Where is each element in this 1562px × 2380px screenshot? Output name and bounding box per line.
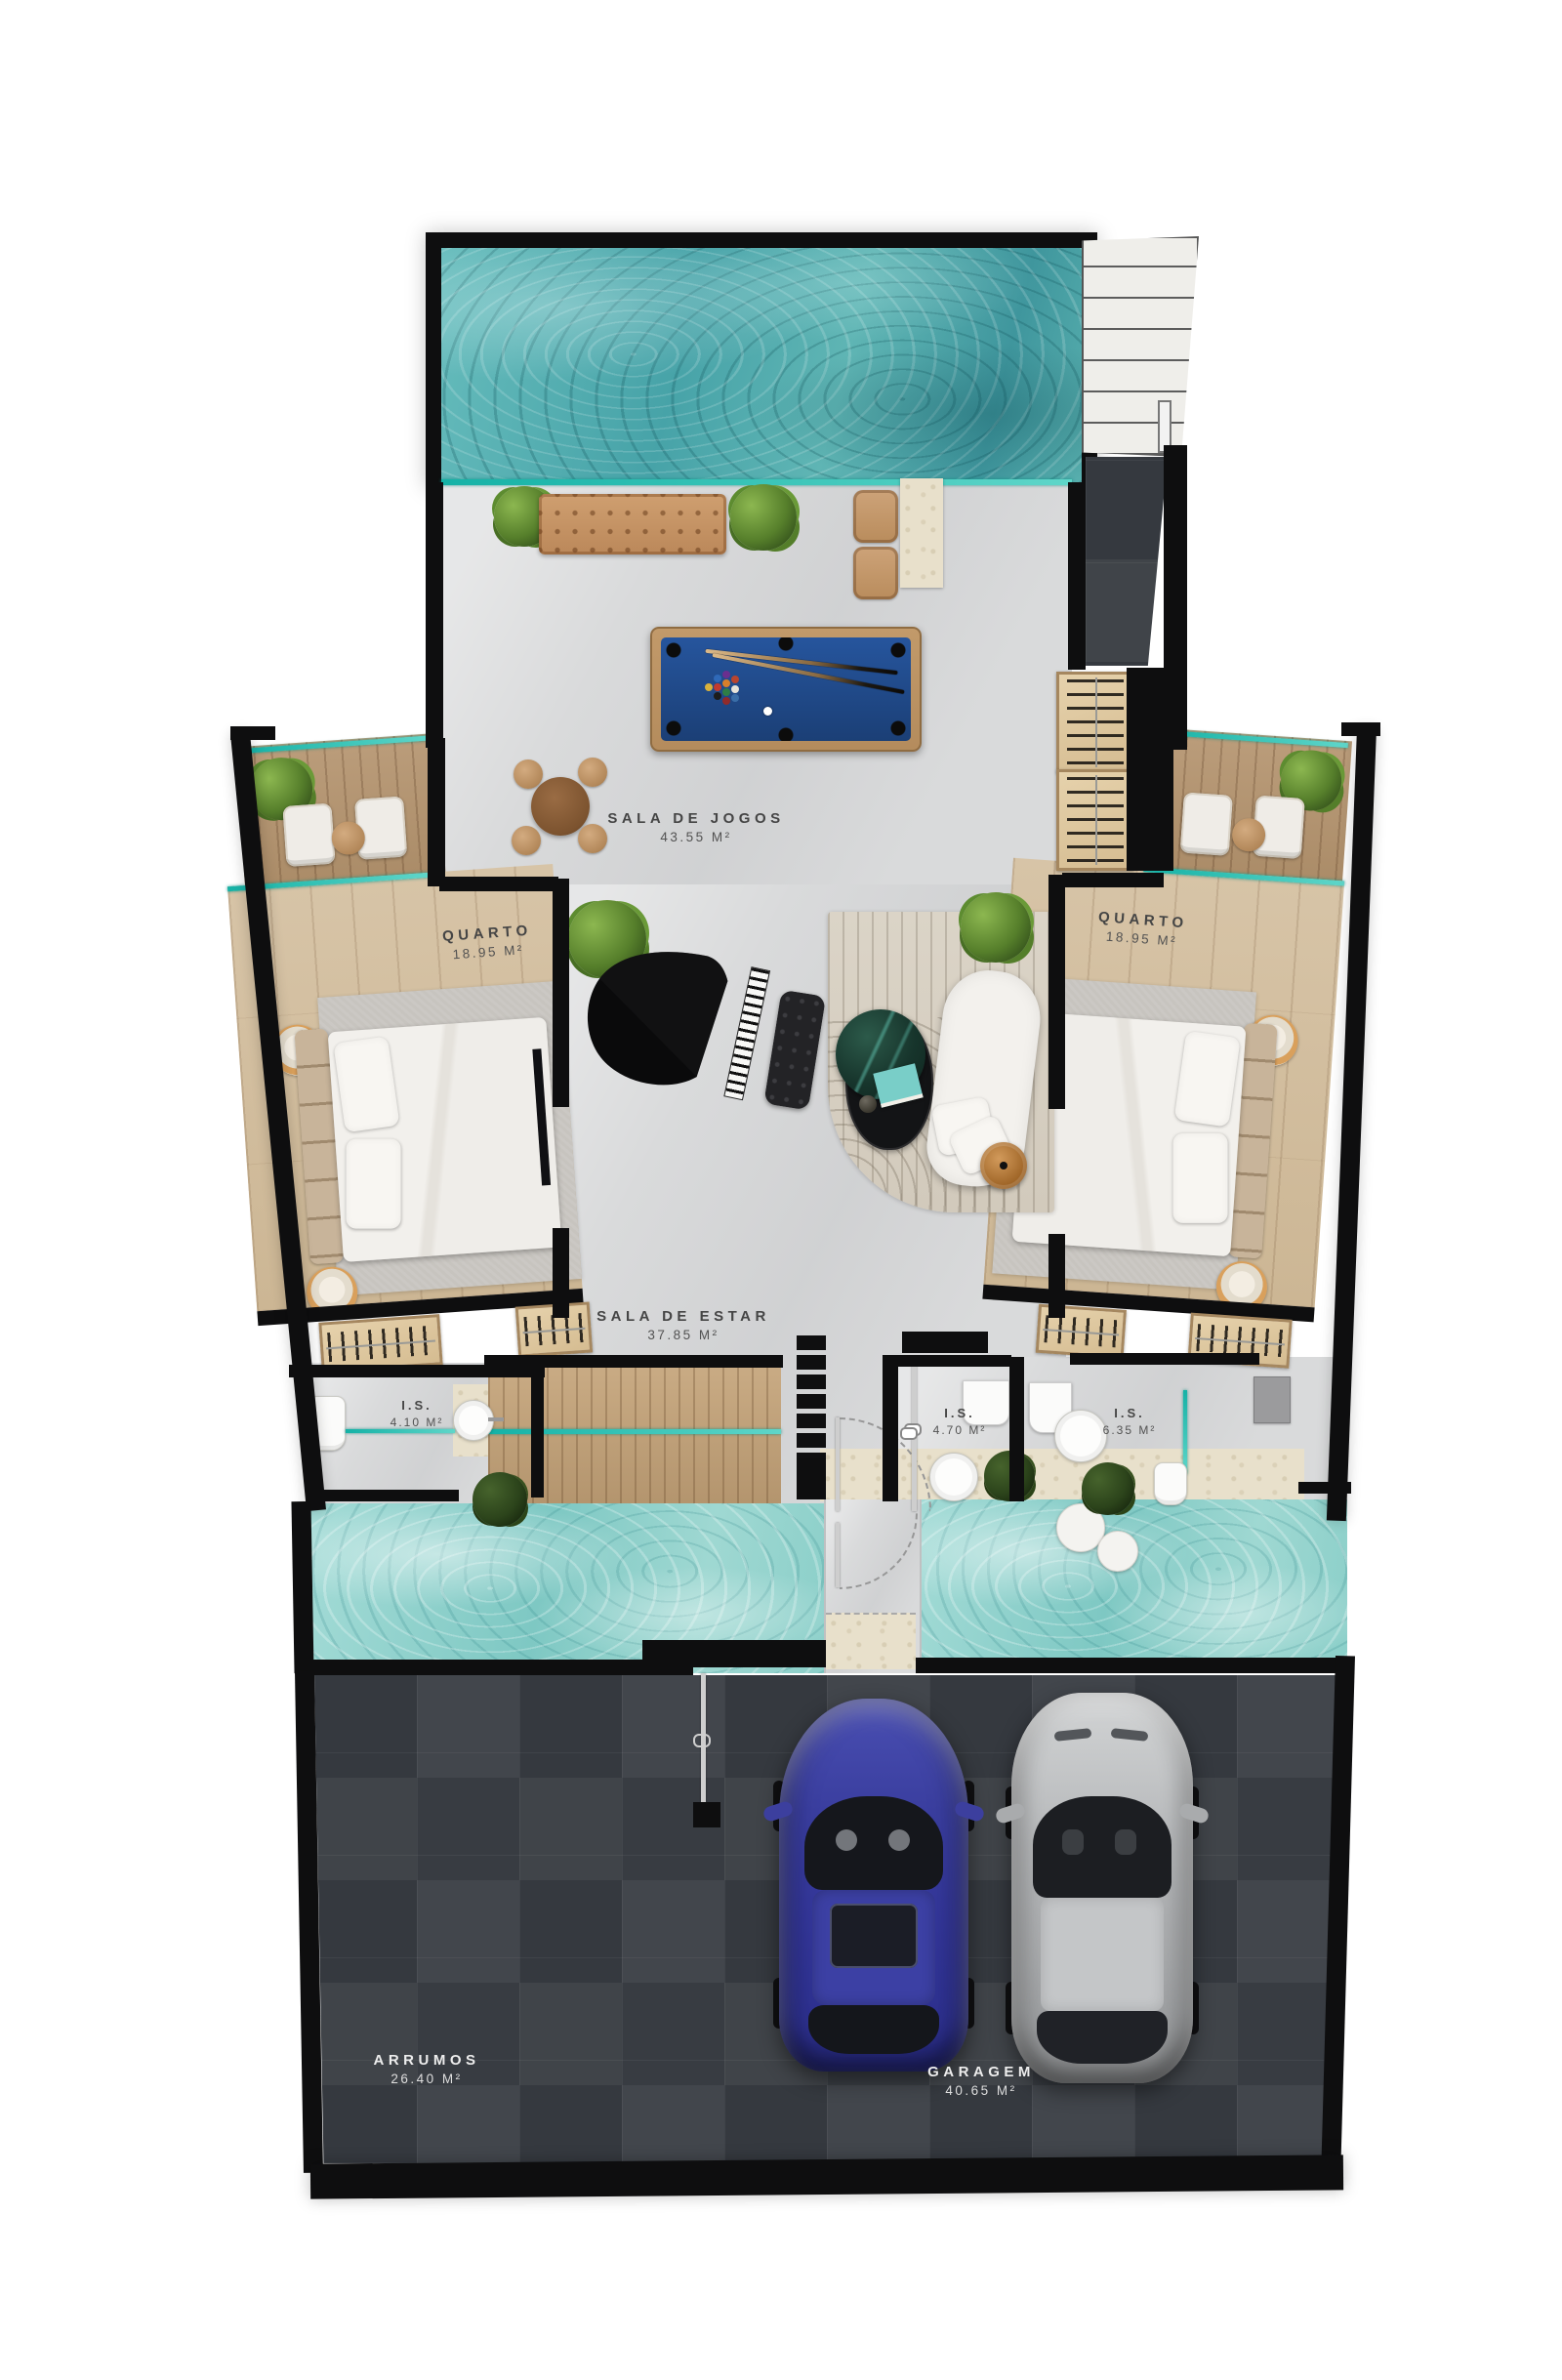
upper-pool-water	[441, 248, 1082, 484]
stool	[578, 758, 607, 787]
floor-plan: QUARTO 18.95 M² QUARTO 18.95 M²	[0, 0, 1562, 2380]
shower-glass	[346, 1429, 455, 1433]
wall	[428, 738, 445, 886]
wall	[553, 879, 569, 1107]
wall	[531, 1365, 544, 1498]
room-label-sala-de-jogos: SALA DE JOGOS 43.55 M²	[550, 810, 843, 844]
copper-table-center	[1000, 1162, 1007, 1169]
pool-table-felt	[661, 637, 911, 741]
entry-corridor	[1086, 457, 1168, 666]
wall	[553, 1228, 569, 1318]
top-pool-block	[426, 232, 1097, 488]
closet-hangers-tall	[1056, 769, 1134, 871]
wall	[308, 1490, 459, 1501]
wall	[439, 877, 558, 891]
copper-side-table	[980, 1142, 1027, 1189]
car-windshield	[1033, 1796, 1171, 1898]
wall	[1068, 482, 1086, 670]
pool-round-lounger	[1097, 1531, 1138, 1572]
bed-pillow	[347, 1139, 401, 1229]
louver-wall	[797, 1335, 826, 1460]
wall	[291, 1501, 313, 1673]
wall	[308, 1660, 693, 1675]
car-seat-headrest	[836, 1829, 857, 1851]
wall	[1070, 1353, 1259, 1365]
bed-pillow	[1173, 1133, 1228, 1223]
lower-pool-right	[918, 1499, 1347, 1673]
room-label-sala-de-estar: SALA DE ESTAR 37.85 M²	[537, 1308, 830, 1342]
louver-wall-solid	[797, 1458, 826, 1499]
deck-chair	[1180, 792, 1233, 855]
wall	[1298, 1482, 1351, 1494]
decor-sphere	[859, 1095, 877, 1113]
wall	[1048, 875, 1065, 1109]
car-rear-window	[808, 2005, 939, 2054]
room-label-arrumos: ARRUMOS 26.40 M²	[280, 2052, 573, 2086]
wall	[1062, 873, 1164, 887]
wall	[484, 1355, 783, 1368]
closet-rail	[1095, 677, 1097, 767]
tufted-daybed	[539, 494, 726, 554]
car-seat-headrest	[1115, 1829, 1136, 1855]
stool	[514, 759, 543, 789]
deck-left	[235, 733, 446, 893]
room-label-is-right: I.S. 6.35 M²	[1051, 1406, 1208, 1437]
grand-piano-group	[567, 928, 843, 1147]
wall	[642, 1640, 826, 1667]
wall	[1341, 722, 1380, 736]
garage-entry-step	[826, 1613, 916, 1669]
wall	[426, 482, 443, 748]
wall	[693, 1802, 720, 1827]
car-roof	[1041, 1898, 1164, 2011]
terrace-chair	[853, 547, 898, 599]
room-label-is-center: I.S. 4.70 M²	[882, 1406, 1038, 1437]
car-seat-headrest	[1062, 1829, 1084, 1855]
wall	[1127, 668, 1173, 871]
plant-icon	[961, 892, 1031, 963]
toilet-icon	[1154, 1462, 1187, 1505]
wall	[230, 726, 275, 740]
closet-hangers-tall	[1056, 672, 1134, 773]
wall	[916, 1658, 1347, 1673]
cue-ball	[763, 707, 772, 716]
deck-chair	[354, 796, 407, 859]
wall	[902, 1332, 988, 1353]
wall	[896, 1355, 1011, 1367]
stool	[512, 826, 541, 855]
closet-rail	[1095, 775, 1097, 865]
door-handle-icon	[693, 1734, 711, 1747]
plant-icon	[473, 1472, 527, 1527]
car-windshield	[804, 1796, 943, 1890]
piano-bench	[763, 990, 826, 1111]
car-rear-window	[1037, 2011, 1168, 2064]
car-seat-headrest	[888, 1829, 910, 1851]
terrace-chair	[853, 490, 898, 543]
pool-table	[650, 627, 922, 752]
room-label-is-left: I.S. 4.10 M²	[339, 1398, 495, 1429]
plant-icon	[730, 484, 797, 551]
car-blue	[779, 1699, 968, 2072]
staircase	[1082, 236, 1199, 457]
wall	[1048, 1234, 1065, 1318]
deck-chair	[282, 803, 335, 867]
car-sunroof	[830, 1904, 918, 1968]
billiard-rack-balls	[705, 683, 713, 691]
plant-icon	[1082, 1462, 1134, 1515]
sink-icon	[929, 1453, 978, 1501]
room-label-garagem: GARAGEM 40.65 M²	[835, 2064, 1128, 2098]
car-silver	[1011, 1693, 1193, 2083]
stone-table	[900, 478, 943, 588]
bath-cabinet	[1254, 1376, 1291, 1423]
